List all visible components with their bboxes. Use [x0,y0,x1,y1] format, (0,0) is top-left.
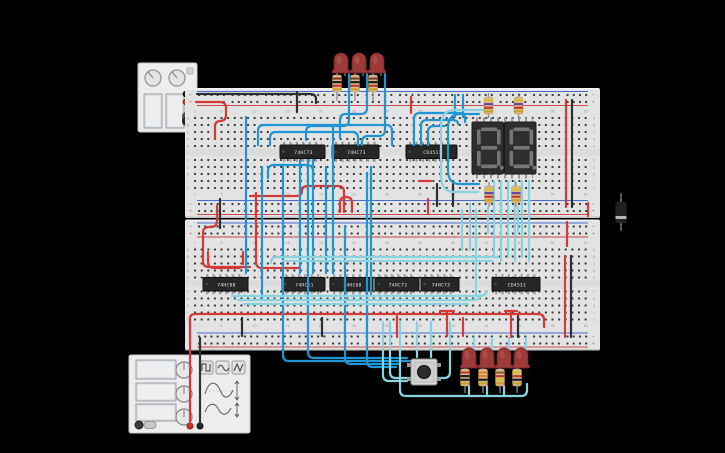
led-highlight [465,351,470,359]
column-number: 30 [385,193,389,197]
resistor-band [512,199,521,201]
diode[interactable] [616,193,627,231]
ic-label: 74HC73 [347,150,365,156]
row-letter: I [594,179,595,183]
column-number: 15 [286,110,290,114]
digit-segment [481,128,497,132]
digit-segment [514,146,530,150]
ic-chip[interactable]: 74HC73 [280,143,325,160]
resistor-band [514,107,523,109]
resistor-band [485,192,494,194]
column-number: 1 [194,193,196,197]
rail-minus-label: − [189,224,192,229]
resistor-band [496,375,505,377]
column-number: 55 [551,193,555,197]
resistor-band [485,196,494,198]
column-number: 35 [418,324,422,328]
column-number: 5 [221,193,223,197]
led-highlight [373,56,378,64]
rail-plus-label: + [189,209,192,214]
row-letter: F [187,158,189,162]
column-number: 60 [584,324,588,328]
column-number: 30 [385,241,389,245]
ic-pin1-dot [334,151,336,153]
resistor-band [351,88,360,90]
ic-pin1-dot [494,283,496,285]
ic-label: 74HC73 [294,150,312,156]
ic-chip[interactable]: CD4511 [492,276,540,293]
ic-pin1-dot [284,283,286,285]
seven-segment-display[interactable] [472,120,536,177]
column-number: 1 [194,110,196,114]
digit-segment [481,165,497,169]
led-body[interactable] [333,53,350,73]
digit-segment [510,130,514,145]
led-body[interactable] [513,348,530,368]
column-number: 10 [253,110,257,114]
row-letter: J [593,186,595,190]
column-number: 40 [451,324,455,328]
column-number: 60 [584,241,588,245]
resistor-band [351,78,360,80]
led-body[interactable] [479,348,496,368]
column-number: 15 [286,241,290,245]
resistor-band [351,85,360,87]
column-number: 35 [418,241,422,245]
row-letter: I [594,311,595,315]
column-number: 5 [221,110,223,114]
diode-body[interactable] [616,202,627,223]
resistor-band [513,375,522,377]
digit-segment [510,151,514,166]
ic-pin1-dot [377,283,379,285]
resistor-band [484,107,493,109]
resistor-band [513,379,522,381]
digit-segment [514,165,530,169]
ic-label: CD4511 [508,282,526,288]
resistor-band [479,372,488,374]
digit-segment [477,130,481,145]
column-number: 15 [286,324,290,328]
ic-label: 74HC11 [295,282,313,288]
row-letter: G [593,165,596,169]
resistor-band [513,372,522,374]
digit-segment [514,128,530,132]
ic-chip[interactable]: 74HC73 [421,276,459,293]
column-number: 25 [352,324,356,328]
column-number: 60 [584,110,588,114]
resistor-band [461,375,470,377]
resistor-band [461,382,470,384]
resistor-band [512,192,521,194]
resistor-band [461,372,470,374]
led-highlight [517,351,522,359]
ic-chip[interactable]: 74HC08 [203,276,248,293]
offset-screen-inner [138,406,174,419]
resistor-band [513,382,522,384]
power-supply-indicator [187,68,193,74]
row-letter: J [187,186,189,190]
digit-segment [530,151,534,166]
ic-label: 74HC08 [217,282,235,288]
circuit-svg: −+−+−+−+AABBCCDDEEFFGGHHIIJJ115510101515… [0,0,725,453]
resistor-band [479,379,488,381]
rail-plus-label: + [189,231,192,236]
pushbutton-cap[interactable] [418,366,431,379]
column-number: 10 [253,324,257,328]
row-letter: J [187,318,189,322]
column-number: 30 [385,324,389,328]
board-center-channel [185,149,600,156]
column-number: 25 [352,241,356,245]
breadboard-1[interactable]: −+−+−+−+AABBCCDDEEFFGGHHIIJJ115510101515… [185,88,600,218]
rail-minus-label: − [189,93,192,98]
ic-pin1-dot [423,283,425,285]
led-highlight [337,56,342,64]
column-number: 5 [221,324,223,328]
frequency-screen-inner [138,362,174,377]
led-body[interactable] [351,53,368,73]
column-number: 60 [584,193,588,197]
resistor-band [496,372,505,374]
ic-chip[interactable]: 74HC73 [332,143,379,160]
column-number: 45 [484,324,488,328]
resistor-band [333,88,342,90]
resistor-band [514,110,523,112]
resistor-band [485,189,494,191]
row-letter: G [593,297,596,301]
digit-segment [477,151,481,166]
resistor-band [484,100,493,102]
rail-plus-label: + [592,100,595,105]
resistor-band [479,382,488,384]
voltage-screen-inner [146,96,160,126]
resistor-band [484,110,493,112]
resistor-band [333,81,342,83]
column-number: 20 [319,193,323,197]
resistor-band [333,78,342,80]
resistor-band [461,379,470,381]
pushbutton[interactable] [407,359,441,385]
resistor-band [369,81,378,83]
resistor-band [514,103,523,105]
circuit-canvas[interactable]: −+−+−+−+AABBCCDDEEFFGGHHIIJJ115510101515… [0,0,725,453]
row-letter: J [593,318,595,322]
amplitude-screen-inner [138,385,174,399]
led-body[interactable] [369,53,386,73]
ic-pin1-dot [408,151,410,153]
column-number: 25 [352,193,356,197]
column-number: 45 [484,241,488,245]
column-number: 20 [319,110,323,114]
resistor-band [496,382,505,384]
resistor-band [512,189,521,191]
column-number: 1 [194,241,196,245]
resistor-band [485,199,494,201]
column-number: 55 [551,241,555,245]
ic-label: CD4511 [423,150,441,156]
resistor-band [479,375,488,377]
row-letter: G [187,165,190,169]
resistor-band [351,81,360,83]
ic-chip[interactable]: 74HC11 [282,276,325,293]
column-number: 5 [221,241,223,245]
rail-minus-label: − [592,224,595,229]
column-number: 55 [551,324,555,328]
resistor-band [484,103,493,105]
led-body[interactable] [461,348,478,368]
column-number: 35 [418,193,422,197]
resistor-band [512,196,521,198]
rail-minus-label: − [189,202,192,207]
rail-minus-label: − [592,202,595,207]
column-number: 50 [517,241,521,245]
rail-minus-label: − [592,334,595,339]
rail-plus-label: + [592,341,595,346]
led-highlight [483,351,488,359]
resistor-band [514,100,523,102]
resistor-band [369,88,378,90]
diode-stripe [616,216,627,219]
column-number: 1 [194,324,196,328]
rail-plus-label: + [592,209,595,214]
ic-chip[interactable]: 74HC73 [375,276,419,293]
column-number: 20 [319,241,323,245]
digit-segment [497,130,501,145]
ic-pin1-dot [332,283,334,285]
rail-plus-label: + [592,231,595,236]
column-number: 40 [451,241,455,245]
row-letter: G [187,297,190,301]
row-letter: I [188,179,189,183]
rail-plus-label: + [189,100,192,105]
resistor-band [496,379,505,381]
row-letter: F [593,290,595,294]
ic-pin1-dot [205,283,207,285]
row-letter: F [593,158,595,162]
led-highlight [355,56,360,64]
led-highlight [500,351,505,359]
resistor-band [369,78,378,80]
digit-segment [481,146,497,150]
resistor-band [333,85,342,87]
digit-decimal-point [500,166,504,170]
resistor-band [369,85,378,87]
row-letter: F [187,290,189,294]
digit-decimal-point [532,166,536,170]
digit-segment [497,151,501,166]
fg-power-toggle[interactable] [135,421,143,429]
digit-segment [530,130,534,145]
fg-power-toggle-track[interactable] [144,422,156,429]
ic-pin1-dot [282,151,284,153]
rail-minus-label: − [592,93,595,98]
current-screen-inner [168,96,182,126]
ic-label: 74HC73 [432,282,450,288]
row-letter: I [188,311,189,315]
led-body[interactable] [496,348,513,368]
column-number: 55 [551,110,555,114]
ic-label: 74HC73 [389,282,407,288]
